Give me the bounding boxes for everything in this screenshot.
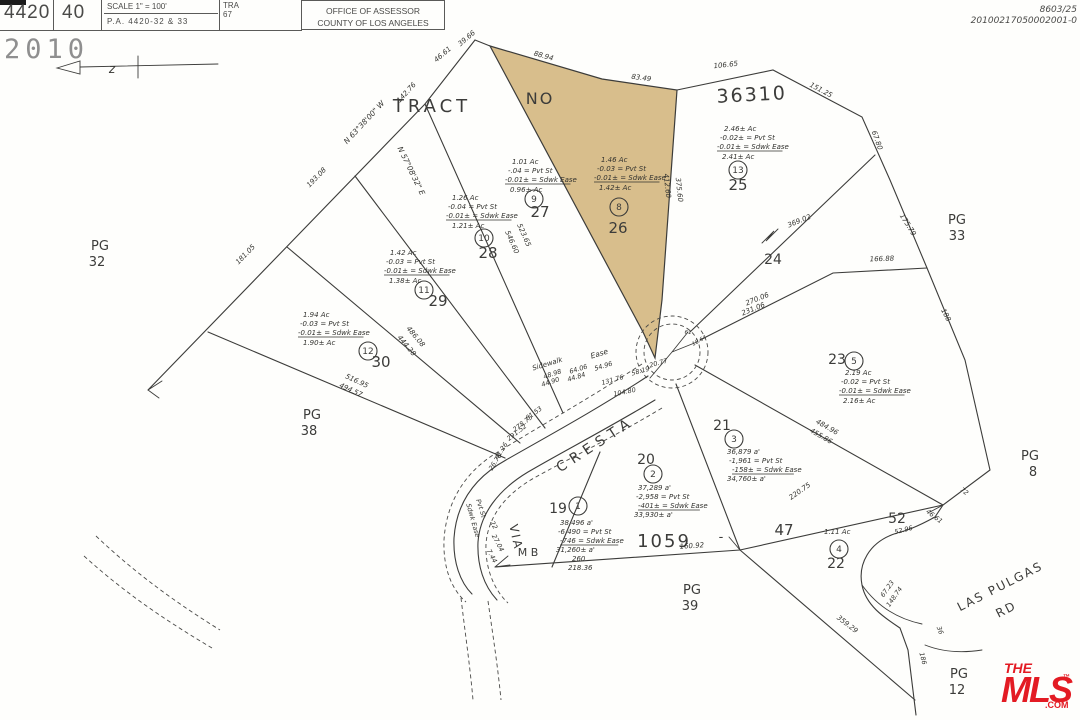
map-label: 193.08: [305, 166, 328, 190]
map-label: 1.11 Ac: [824, 528, 851, 536]
map-label: 131.76: [600, 373, 624, 387]
map-label: 37,289 a': [638, 484, 671, 492]
map-label: PG: [1021, 449, 1039, 464]
map-label: RD: [993, 598, 1019, 620]
map-label: 2.16± Ac: [843, 397, 875, 405]
map-label: 2: [650, 470, 656, 480]
map-label: 36: [935, 625, 945, 636]
mls-logo-com: .COM: [1045, 700, 1069, 710]
tract-no-word: NO: [526, 89, 555, 108]
map-label: N 57°08'32" E: [396, 145, 427, 197]
map-label: 52: [888, 511, 906, 527]
map-label: 359.29: [835, 614, 860, 636]
map-label: 1.42 Ac: [390, 249, 417, 257]
map-label: 106.65: [713, 60, 739, 71]
map-label: 220.75: [788, 481, 813, 502]
map-label: 188: [939, 307, 953, 323]
street-via: VIA: [506, 523, 525, 551]
lot-20-number: 20: [637, 452, 655, 468]
map-label: PG: [303, 408, 321, 423]
map-label: 32: [89, 255, 106, 270]
map-label: -.04 = Pvt St: [508, 167, 553, 175]
map-label: -0.01± = Sdwk Ease: [505, 176, 577, 184]
map-label: -0.03 = Pvt St: [300, 320, 349, 328]
lot-23-number: 23: [828, 352, 846, 368]
map-label: -158± = Sdwk Ease: [732, 466, 802, 474]
map-label: -0.01± = Sdwk Ease: [384, 267, 456, 275]
map-label: -0.02± = Pvt St: [720, 134, 775, 142]
map-label: z: [108, 62, 116, 76]
street-cresta: CRESTA: [554, 413, 638, 476]
map-label: PG: [683, 583, 701, 598]
map-label: 4: [836, 545, 842, 555]
map-label: 38,496 a': [560, 519, 593, 527]
map-label: -6,490 = Pvt St: [558, 528, 612, 536]
map-label: -1,961 = Pvt St: [729, 457, 783, 465]
map-label: 1.01 Ac: [512, 158, 539, 166]
map-label: 12: [949, 683, 966, 698]
map-label: 1.42± Ac: [599, 184, 631, 192]
hand-mark: [57, 56, 218, 78]
map-label: 8: [616, 203, 622, 213]
map-label: 5: [851, 357, 857, 367]
lot-22-number: 22: [827, 556, 845, 572]
map-label: 39: [682, 599, 699, 614]
map-label: 2.19 Ac: [845, 369, 872, 377]
map-label: N 63°38'00" W: [342, 98, 387, 145]
map-label: 47: [774, 521, 793, 539]
map-label: 26.78: [487, 452, 504, 472]
map-label: 54.96: [593, 360, 613, 373]
map-label: 39.66: [456, 29, 477, 48]
map-label: 181.05: [234, 243, 257, 267]
map-label: 375.60: [674, 177, 685, 203]
map-label: 1.90± Ac: [303, 339, 335, 347]
map-label: 22: [488, 520, 499, 531]
map-label: 218.36: [568, 564, 593, 572]
map-label: -746 = Sdwk Ease: [560, 537, 624, 545]
map-label: -2,958 = Pvt St: [636, 493, 690, 501]
map-label: 3: [731, 435, 737, 445]
lot-24-number: 24: [764, 252, 782, 268]
map-label: -0.01± = Sdwk Ease: [298, 329, 370, 337]
map-label: 260: [572, 555, 586, 563]
map-label: 1: [575, 502, 581, 512]
map-label: 8: [1029, 465, 1037, 480]
map-label: 31,260± a': [556, 546, 595, 554]
map-label: 46.61: [924, 508, 944, 526]
map-label: 10: [478, 234, 490, 244]
map-label: -0.01± = Sdwk Ease: [594, 174, 666, 182]
parcel-map: TRACTNO36310PG32PG33PG38PG39PG8PG1224252…: [0, 0, 1080, 720]
map-label: 1.21± Ac: [452, 222, 484, 230]
map-label: 33: [949, 229, 966, 244]
map-label: 1.26 Ac: [452, 194, 479, 202]
map-label: 9: [531, 195, 537, 205]
assessor-map-page: 4420 40 SCALE 1" = 100' P.A. 4420-32 & 3…: [0, 0, 1080, 720]
map-label: 11: [418, 286, 429, 296]
map-label: 175.79: [898, 212, 918, 237]
map-label: 34,760± a': [727, 475, 766, 483]
map-label: -0.01± = Sdwk Ease: [717, 143, 789, 151]
map-label: 1.94 Ac: [303, 311, 330, 319]
map-label: 72: [959, 486, 970, 497]
map-label: -0.02 = Pvt St: [841, 378, 890, 386]
map-label: 61: [685, 330, 692, 336]
map-label: -0.01± = Sdwk Ease: [446, 212, 518, 220]
map-label: 0.96± Ac: [510, 186, 542, 194]
map-label: 33,930± a': [634, 511, 673, 519]
map-label: 546.60: [503, 229, 520, 255]
map-label: PG: [948, 213, 966, 228]
map-label: 58.19: [630, 365, 650, 378]
map-label: 12: [362, 347, 373, 357]
map-label: 83.49: [631, 73, 652, 84]
map-label: -0.04 = Pvt St: [448, 203, 497, 211]
map-label: 160.92: [679, 541, 705, 551]
map-label: -0.03 = Pvt St: [386, 258, 435, 266]
lot-30-number: 30: [371, 353, 390, 371]
map-label: 13: [732, 166, 743, 176]
map-label: 1.46 Ac: [601, 156, 628, 164]
map-label: 36,879 a': [727, 448, 760, 456]
map-label: 1.38± Ac: [389, 277, 421, 285]
lot-26-number: 26: [608, 219, 627, 237]
map-label: -: [719, 530, 724, 545]
lot-19-number: 19: [549, 501, 567, 517]
map-label: Ease: [589, 347, 609, 361]
map-label: 46.61: [432, 45, 452, 64]
mls-logo-tm: ™: [1063, 674, 1070, 681]
map-label: 104.80: [613, 386, 637, 399]
map-label: 2.46± Ac: [724, 125, 756, 133]
map-label: 166.88: [870, 255, 895, 264]
map-label: -0.01± = Sdwk Ease: [839, 387, 911, 395]
map-label: PG: [91, 239, 109, 254]
street-right-of-way: [84, 316, 708, 700]
map-label: 38: [301, 424, 318, 439]
map-label: 2.41± Ac: [722, 153, 754, 161]
map-label: -0.03 = Pvt St: [597, 165, 646, 173]
mls-logo: THE MLS ™ .COM: [1001, 660, 1075, 716]
map-label: -401± = Sdwk Ease: [638, 502, 708, 510]
map-label: PG: [950, 667, 968, 682]
tract-number: 36310: [716, 82, 788, 108]
map-label: 186: [917, 651, 928, 665]
